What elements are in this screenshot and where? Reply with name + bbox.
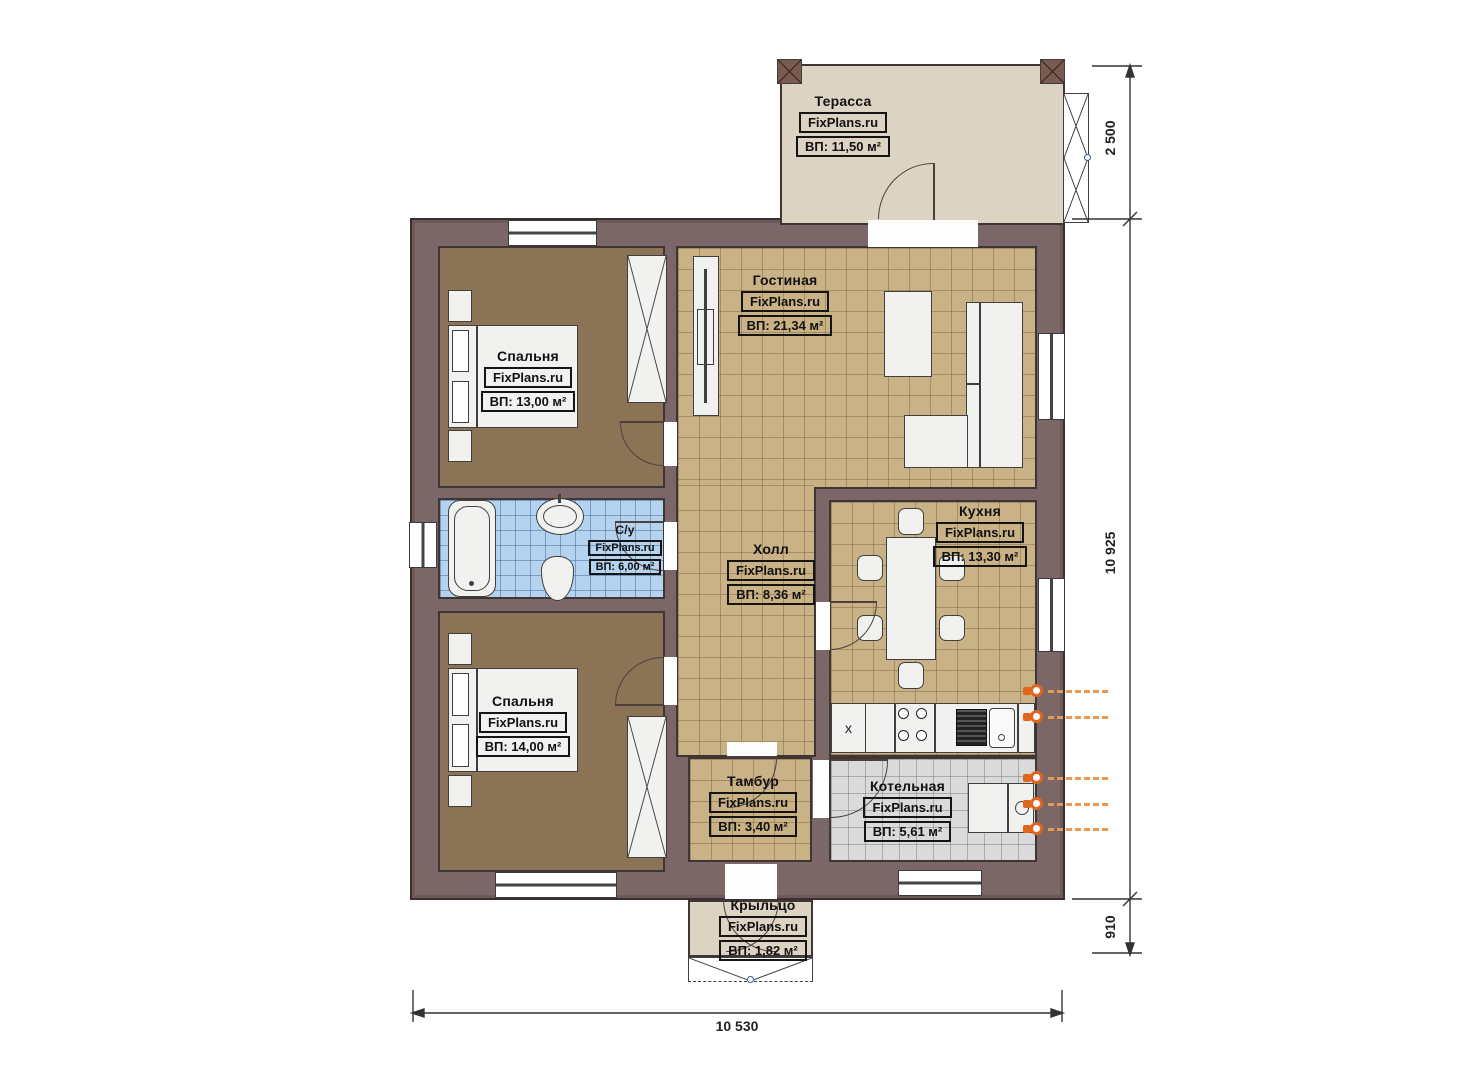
terrace-post-icon [1040,59,1065,84]
room-area: ВП: 1,82 м² [719,940,807,961]
room-area: ВП: 13,30 м² [933,546,1028,567]
tv-stand [693,256,719,416]
boiler-door-leaf [831,759,888,761]
room-name: Гостиная [753,272,818,288]
watermark: FixPlans.ru [719,916,807,937]
sofa-section-chaise [904,415,968,468]
room-area: ВП: 14,00 м² [476,736,571,757]
bedroom2-door-leaf [615,704,663,706]
watermark: FixPlans.ru [741,291,829,312]
bathtub [448,500,496,597]
porch-node-icon [747,976,754,983]
dishwasher [956,709,987,746]
kitchen-counter: x [831,703,1035,753]
room-area: ВП: 11,50 м² [796,136,890,157]
watermark: FixPlans.ru [936,522,1024,543]
room-area: ВП: 6,00 м² [589,559,662,575]
bedroom1-door-opening [664,422,677,466]
room-name: С/у [615,523,634,537]
watermark: FixPlans.ru [484,367,572,388]
window-bathroom [409,522,437,568]
room-area: ВП: 3,40 м² [709,816,797,837]
entrance-door-opening [725,864,777,899]
room-label-bedroom1: Спальня FixPlans.ru ВП: 13,00 м² [473,348,583,412]
coffee-table [884,291,932,377]
room-label-bathroom: С/у FixPlans.ru ВП: 6,00 м² [580,523,670,575]
railing-node-icon [1084,154,1091,161]
tambour-door-leaf [727,756,777,758]
sink [536,498,584,535]
watermark: FixPlans.ru [727,560,815,581]
terrace-door-leaf [933,163,935,220]
window-kitchen [1038,578,1065,652]
room-name: Спальня [497,348,559,364]
room-label-tambour: Тамбур FixPlans.ru ВП: 3,40 м² [698,773,808,837]
dimension-terrace-depth: 2 500 [1102,108,1118,168]
nightstand [448,775,472,807]
bedroom2-door-opening [664,657,677,705]
floor-plan: x Терасса FixPlans.ru ВП: 11,50 м² Гости… [0,0,1473,1080]
chair [898,662,924,689]
counter-sink [989,708,1015,748]
hall-living-junction [678,485,814,491]
stove [894,706,934,750]
room-name: Холл [753,541,789,557]
wardrobe [627,255,667,403]
kitchen-door-opening [816,602,830,650]
bedroom1-door-leaf [620,421,663,423]
kitchen-door-leaf [830,601,877,603]
dimension-porch-depth: 910 [1102,902,1118,952]
watermark: FixPlans.ru [863,797,951,818]
room-name: Тамбур [727,773,779,789]
room-label-hall: Холл FixPlans.ru ВП: 8,36 м² [716,541,826,605]
boiler-door-opening [813,760,829,818]
nightstand [448,430,472,462]
sofa-section-vertical [966,302,1023,468]
hall-floor [676,487,816,757]
counter-appliance-mark: x [832,704,866,752]
watermark: FixPlans.ru [799,112,887,133]
room-name: Кухня [959,503,1001,519]
watermark: FixPlans.ru [588,540,661,556]
terrace-post-icon [777,59,802,84]
wardrobe [627,716,667,858]
room-label-boiler: Котельная FixPlans.ru ВП: 5,61 м² [850,778,965,842]
room-name: Крыльцо [730,897,795,913]
room-area: ВП: 8,36 м² [727,584,815,605]
room-label-bedroom2: Спальня FixPlans.ru ВП: 14,00 м² [468,693,578,757]
room-name: Котельная [870,778,945,794]
watermark: FixPlans.ru [479,712,567,733]
chair [939,615,965,641]
room-area: ВП: 13,00 м² [481,391,576,412]
window-boiler [898,870,982,896]
dimension-house-height: 10 925 [1102,518,1118,588]
room-label-kitchen: Кухня FixPlans.ru ВП: 13,30 м² [925,503,1035,567]
room-label-porch: Крыльцо FixPlans.ru ВП: 1,82 м² [708,897,818,961]
window-living [1038,333,1065,420]
window-bedroom1 [508,220,597,246]
room-name: Терасса [815,93,872,109]
room-area: ВП: 5,61 м² [864,821,952,842]
room-area: ВП: 21,34 м² [738,315,833,336]
nightstand [448,633,472,665]
nightstand [448,290,472,322]
dimension-house-width: 10 530 [697,1018,777,1034]
room-label-terrace: Терасса FixPlans.ru ВП: 11,50 м² [788,93,898,157]
watermark: FixPlans.ru [709,792,797,813]
chair [857,555,883,581]
window-bedroom2 [495,872,617,898]
chair [898,508,924,535]
room-label-living: Гостиная FixPlans.ru ВП: 21,34 м² [725,272,845,336]
terrace-door-opening [868,220,978,247]
room-name: Спальня [492,693,554,709]
